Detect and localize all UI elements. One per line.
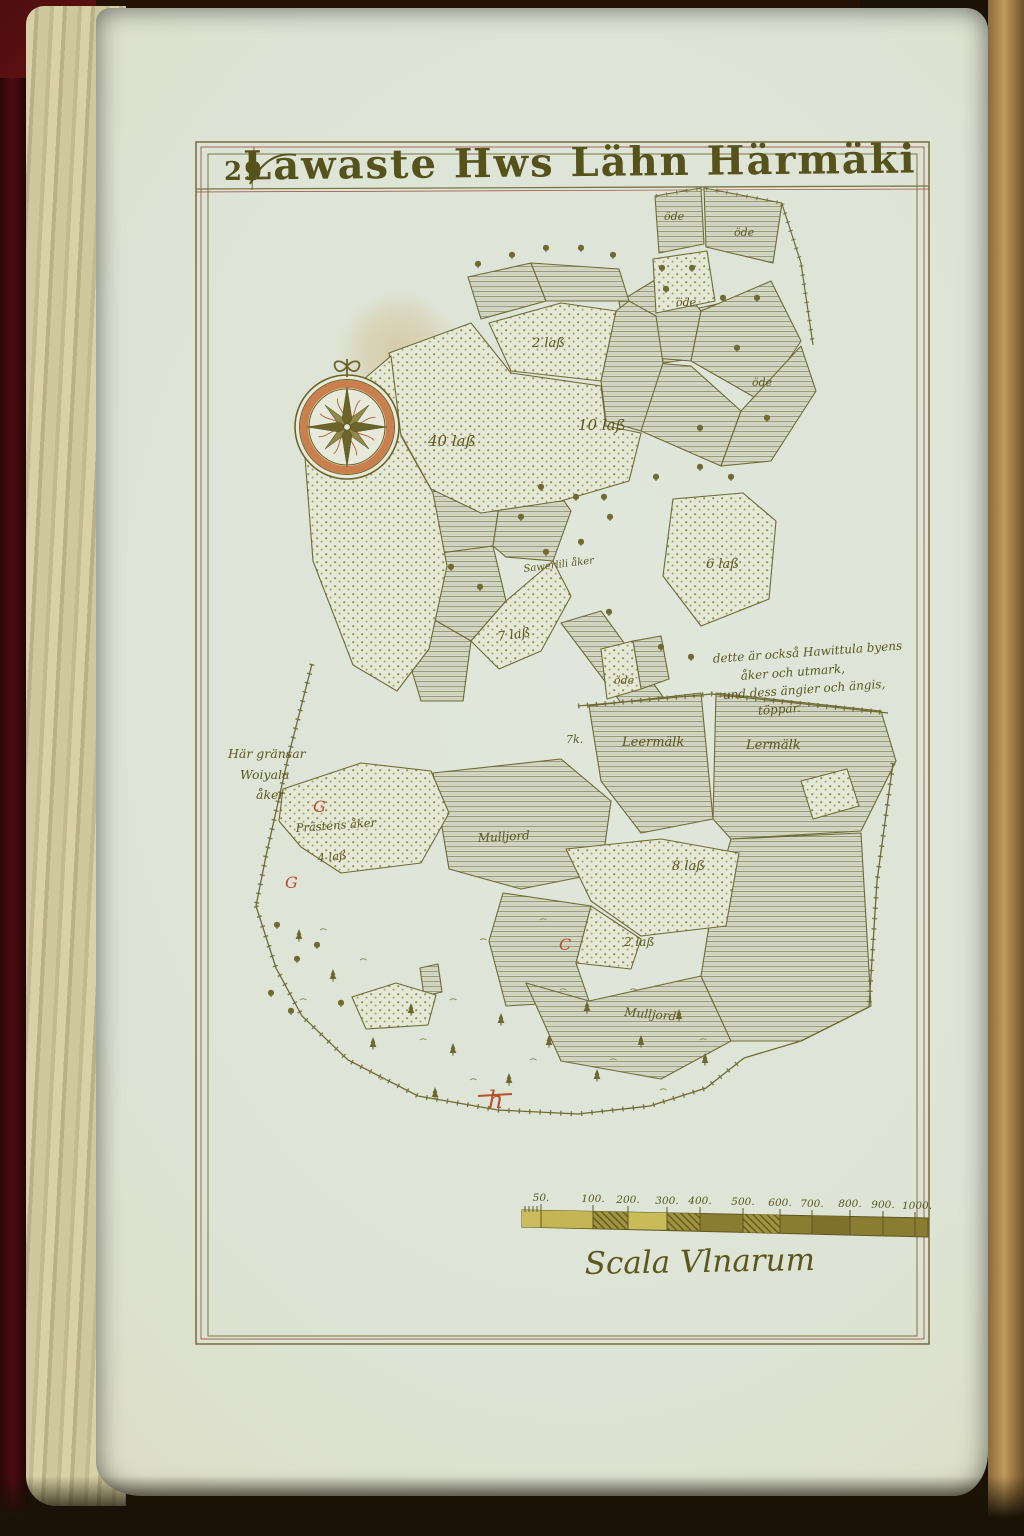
scale-tick-label: 100. (581, 1193, 604, 1205)
field-label: 7k. (566, 733, 583, 746)
note-line: Här gränsar (227, 746, 307, 761)
field-label: 10 laß (578, 416, 626, 434)
page-title: Lawaste Hws Lähn Härmäki (243, 135, 917, 189)
field-label: öde (614, 674, 635, 687)
scale-tick-label: 300. (655, 1195, 678, 1207)
field-label: Lermälk (745, 738, 801, 753)
field-label: 8 laß (672, 859, 705, 874)
note-line: töppar. (758, 701, 802, 718)
scale-tick-label: 900. (871, 1199, 894, 1211)
scale-tick-label: 200. (615, 1194, 639, 1206)
scale-tick-label: 600. (768, 1197, 791, 1209)
scale-tick-label: 800. (838, 1198, 861, 1210)
field-label: öde (664, 210, 685, 223)
scale-tick-label: 1000. (902, 1200, 932, 1212)
red-mark: G (285, 873, 298, 892)
red-mark: h (488, 1086, 503, 1114)
map-drawing: 29 Lawaste Hws Lähn Härmäki (0, 0, 1024, 1536)
scale-caption: Scala Vlnarum (584, 1242, 815, 1282)
note-line: åker (256, 787, 285, 802)
note-line: Woiyala (240, 767, 290, 782)
note-line: åker och utmark, (740, 661, 845, 683)
field-label: öde (752, 376, 773, 389)
photo-background: 29 Lawaste Hws Lähn Härmäki (0, 0, 1024, 1536)
red-mark: C (559, 935, 571, 954)
scale-tick-label: 50. (533, 1192, 550, 1204)
scale-tick-label: 700. (800, 1198, 823, 1210)
note-line: dette är också Hawittula byens (712, 638, 902, 666)
scale-tick-label: 400. (687, 1195, 711, 1207)
field-label: 2 laß (531, 336, 565, 351)
field-label: 6 laß (706, 557, 739, 572)
field-label: 2 laß (623, 935, 654, 949)
scale-tick-label: 500. (731, 1196, 754, 1208)
scale-bar: 50. 100. 200. 300. 400. 500. 600. 700. 8… (522, 1192, 932, 1282)
field-label: Leermälk (621, 735, 684, 750)
red-mark: G (313, 797, 326, 816)
field-label: 40 laß (427, 432, 476, 450)
field-label: öde (676, 296, 697, 309)
field-label: Mulljord (476, 828, 530, 845)
field-label: öde (734, 226, 755, 239)
red-mark-crossbar (478, 1094, 512, 1096)
